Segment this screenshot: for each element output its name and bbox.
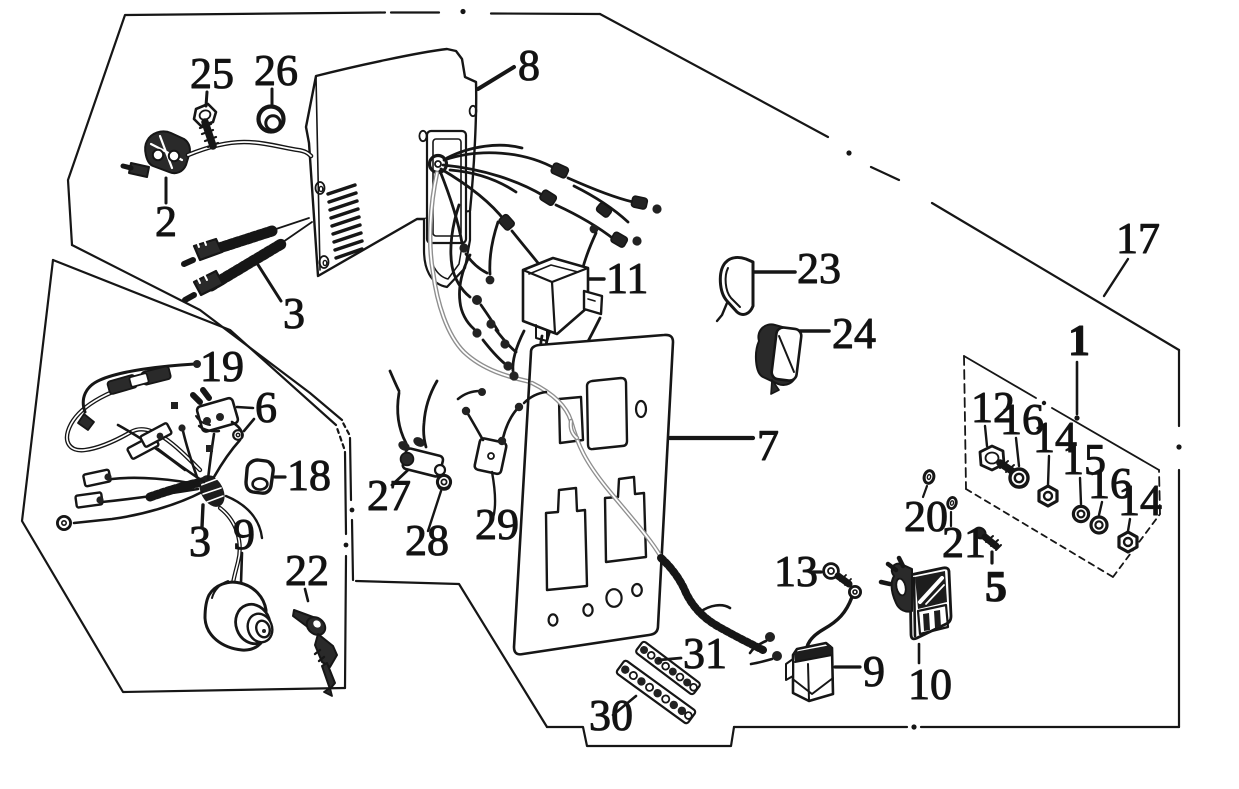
svg-text:30: 30 <box>589 691 633 740</box>
svg-text:31: 31 <box>683 629 727 678</box>
svg-text:1: 1 <box>1068 316 1090 365</box>
svg-text:28: 28 <box>405 516 449 565</box>
svg-text:25: 25 <box>190 49 234 98</box>
svg-text:17: 17 <box>1116 214 1160 263</box>
svg-text:19: 19 <box>200 342 244 391</box>
svg-text:7: 7 <box>757 421 779 470</box>
svg-text:5: 5 <box>985 562 1007 611</box>
svg-text:6: 6 <box>255 383 277 432</box>
svg-text:14: 14 <box>1118 476 1162 525</box>
svg-text:21: 21 <box>942 518 986 567</box>
svg-text:18: 18 <box>287 451 331 500</box>
svg-text:9: 9 <box>863 647 885 696</box>
svg-text:10: 10 <box>908 660 952 709</box>
svg-text:3: 3 <box>283 289 305 338</box>
svg-text:29: 29 <box>475 500 519 549</box>
svg-text:3: 3 <box>189 517 211 566</box>
svg-text:9: 9 <box>233 510 255 559</box>
svg-text:26: 26 <box>254 46 298 95</box>
svg-text:22: 22 <box>285 546 329 595</box>
svg-text:24: 24 <box>832 309 876 358</box>
svg-text:27: 27 <box>367 471 411 520</box>
svg-text:23: 23 <box>797 244 841 293</box>
svg-text:11: 11 <box>606 254 648 303</box>
svg-text:8: 8 <box>518 41 540 90</box>
